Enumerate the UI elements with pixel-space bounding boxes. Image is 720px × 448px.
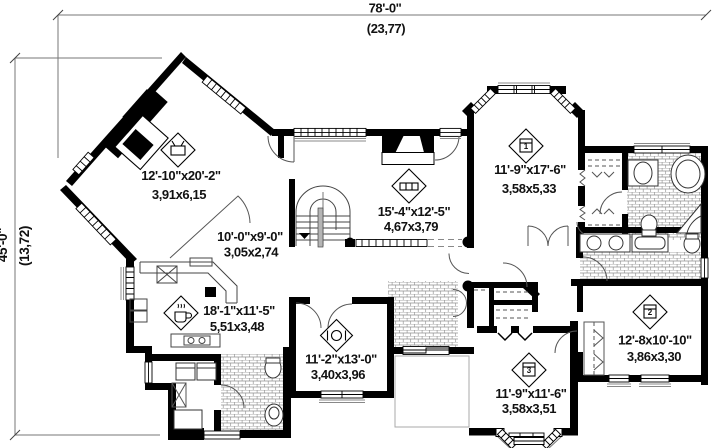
svg-text:78'-0": 78'-0" (369, 1, 402, 16)
svg-text:1: 1 (524, 142, 529, 151)
svg-text:18'-1"x11'-5": 18'-1"x11'-5" (203, 303, 275, 318)
svg-text:4,67x3,79: 4,67x3,79 (384, 219, 438, 234)
svg-text:12'-8x10'-10": 12'-8x10'-10" (618, 333, 692, 348)
svg-text:5,51x3,48: 5,51x3,48 (210, 319, 264, 334)
svg-text:(23,77): (23,77) (367, 21, 405, 36)
svg-text:3,86x3,30: 3,86x3,30 (627, 349, 681, 364)
svg-text:11'-2"x13'-0": 11'-2"x13'-0" (305, 352, 377, 367)
svg-text:15'-4"x12'-5": 15'-4"x12'-5" (378, 204, 451, 219)
svg-text:11'-9"x17'-6": 11'-9"x17'-6" (494, 162, 566, 177)
svg-text:3,58x5,33: 3,58x5,33 (502, 181, 556, 196)
svg-text:2: 2 (648, 308, 653, 317)
svg-text:11'-9"x11'-6": 11'-9"x11'-6" (495, 386, 566, 401)
svg-text:3,58x3,51: 3,58x3,51 (502, 401, 556, 416)
svg-text:3,91x6,15: 3,91x6,15 (152, 187, 206, 202)
svg-text:45'-0": 45'-0" (0, 228, 10, 262)
svg-text:3,05x2,74: 3,05x2,74 (224, 245, 279, 260)
svg-text:3: 3 (527, 366, 532, 375)
svg-text:12'-10"x20'-2": 12'-10"x20'-2" (141, 168, 221, 183)
svg-text:3,40x3,96: 3,40x3,96 (311, 367, 365, 382)
svg-text:10'-0"x9'-0": 10'-0"x9'-0" (217, 229, 283, 244)
svg-text:(13,72): (13,72) (17, 226, 32, 266)
